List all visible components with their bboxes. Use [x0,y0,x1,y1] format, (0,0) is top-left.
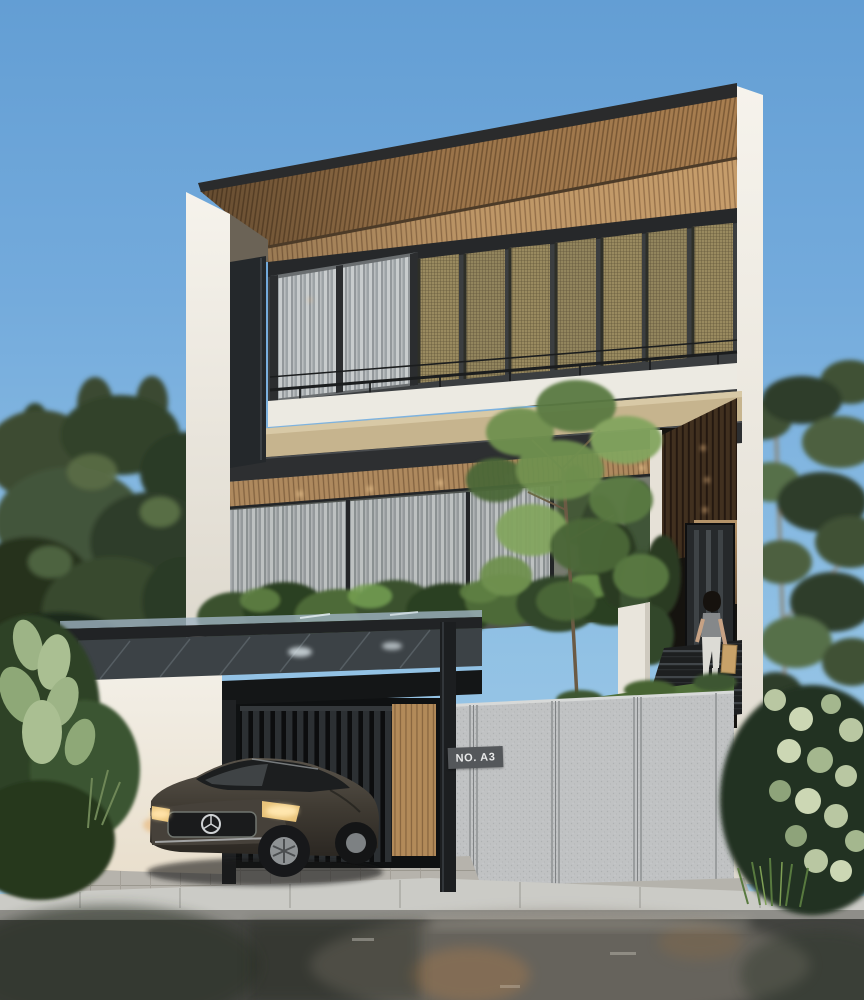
architectural-render: NO. A3 [0,0,864,1000]
house-number-sign: NO. A3 [448,746,504,769]
scene-illustration [0,0,864,1000]
timber-slat-wall [392,704,436,856]
left-fin-wall [186,192,230,648]
house-number-text: NO. A3 [455,751,495,764]
puddle-reflections [0,905,864,1000]
